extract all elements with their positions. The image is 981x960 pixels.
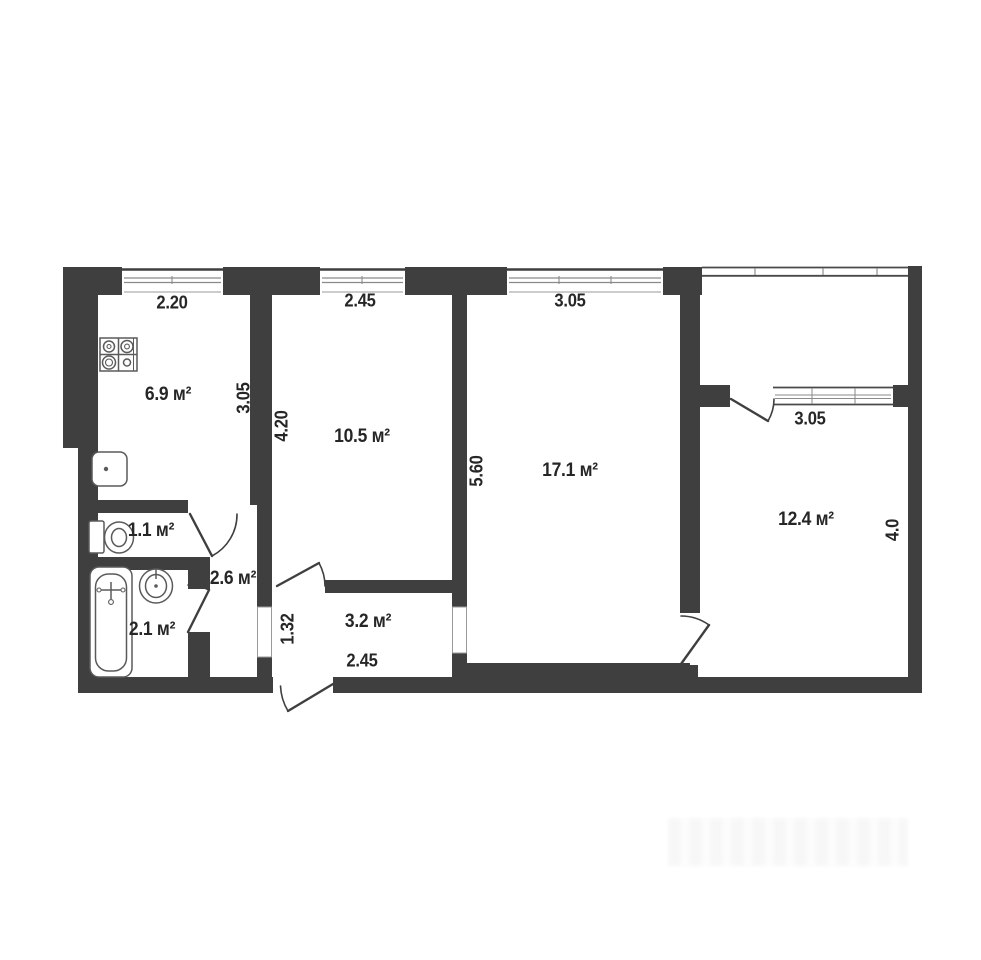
stove-icon [100, 338, 137, 371]
opening-hall-corridor [258, 607, 272, 657]
room-12-4-door [681, 616, 709, 664]
walls [63, 266, 922, 693]
wall-top-2 [223, 267, 320, 295]
kitchen-window [122, 267, 223, 295]
dim-room-12-4-depth: 4.0 [883, 519, 904, 541]
balcony-glazing [702, 266, 908, 277]
wall-corridor-top [325, 580, 452, 593]
wc-door [190, 514, 237, 556]
wall-bottom-right [333, 677, 922, 693]
wall-room171-bottom [452, 663, 690, 677]
dim-room-17-1-depth: 5.60 [467, 455, 488, 486]
wall-right [908, 266, 922, 693]
wall-bottom-left [78, 677, 273, 693]
dim-room-17-1-width: 3.05 [554, 291, 585, 312]
dim-room-12-4-window: 3.05 [794, 409, 825, 430]
floor-plan: 6.9 м² 10.5 м² 17.1 м² 12.4 м² 1.1 м² 2.… [0, 0, 981, 960]
wall-balcony-pier-right [893, 385, 908, 407]
wall-bath-right-bot [188, 632, 210, 677]
entrance-door [281, 684, 334, 711]
dim-kitchen-width: 2.20 [156, 293, 187, 314]
wash-basin-icon [140, 569, 173, 603]
wall-top-4 [663, 267, 702, 295]
dim-corridor-depth: 1.32 [278, 613, 299, 644]
room-label-kitchen: 6.9 м² [145, 384, 191, 406]
room-label-17-1: 17.1 м² [542, 460, 598, 482]
sink-icon [92, 452, 127, 486]
room-label-12-4: 12.4 м² [778, 509, 834, 531]
room-label-10-5: 10.5 м² [334, 426, 390, 448]
wall-hall-left [257, 505, 272, 607]
wall-top-3 [405, 267, 507, 295]
balcony-door [731, 399, 774, 421]
bathroom-door [188, 585, 209, 632]
toilet-icon [89, 521, 134, 553]
room-10-5-door [277, 563, 325, 586]
bathtub-icon [90, 567, 132, 677]
wall-room171-right [680, 295, 700, 613]
room-12-4-window [773, 385, 893, 407]
watermark [668, 818, 908, 866]
room-label-hallway: 2.6 м² [210, 568, 256, 590]
dim-kitchen-depth: 3.05 [234, 382, 255, 413]
wall-balcony-pier-left [700, 385, 730, 407]
dim-corridor-width: 2.45 [346, 651, 377, 672]
wall-mid-vertical [452, 295, 467, 607]
room-label-bathroom: 2.1 м² [129, 619, 175, 641]
room-label-wc: 1.1 м² [128, 520, 174, 542]
dim-room-10-5-depth: 4.20 [272, 410, 293, 441]
wall-room171-right-stub [680, 665, 698, 677]
wall-left-upper [63, 267, 98, 448]
dim-room-10-5-width: 2.45 [344, 291, 375, 312]
room-label-corridor: 3.2 м² [345, 611, 391, 633]
opening-corridor-room171 [453, 607, 467, 653]
wall-hall-left-stub [257, 657, 272, 681]
floor-plan-drawing [0, 0, 981, 960]
wall-kitchen-bottom [88, 500, 188, 513]
